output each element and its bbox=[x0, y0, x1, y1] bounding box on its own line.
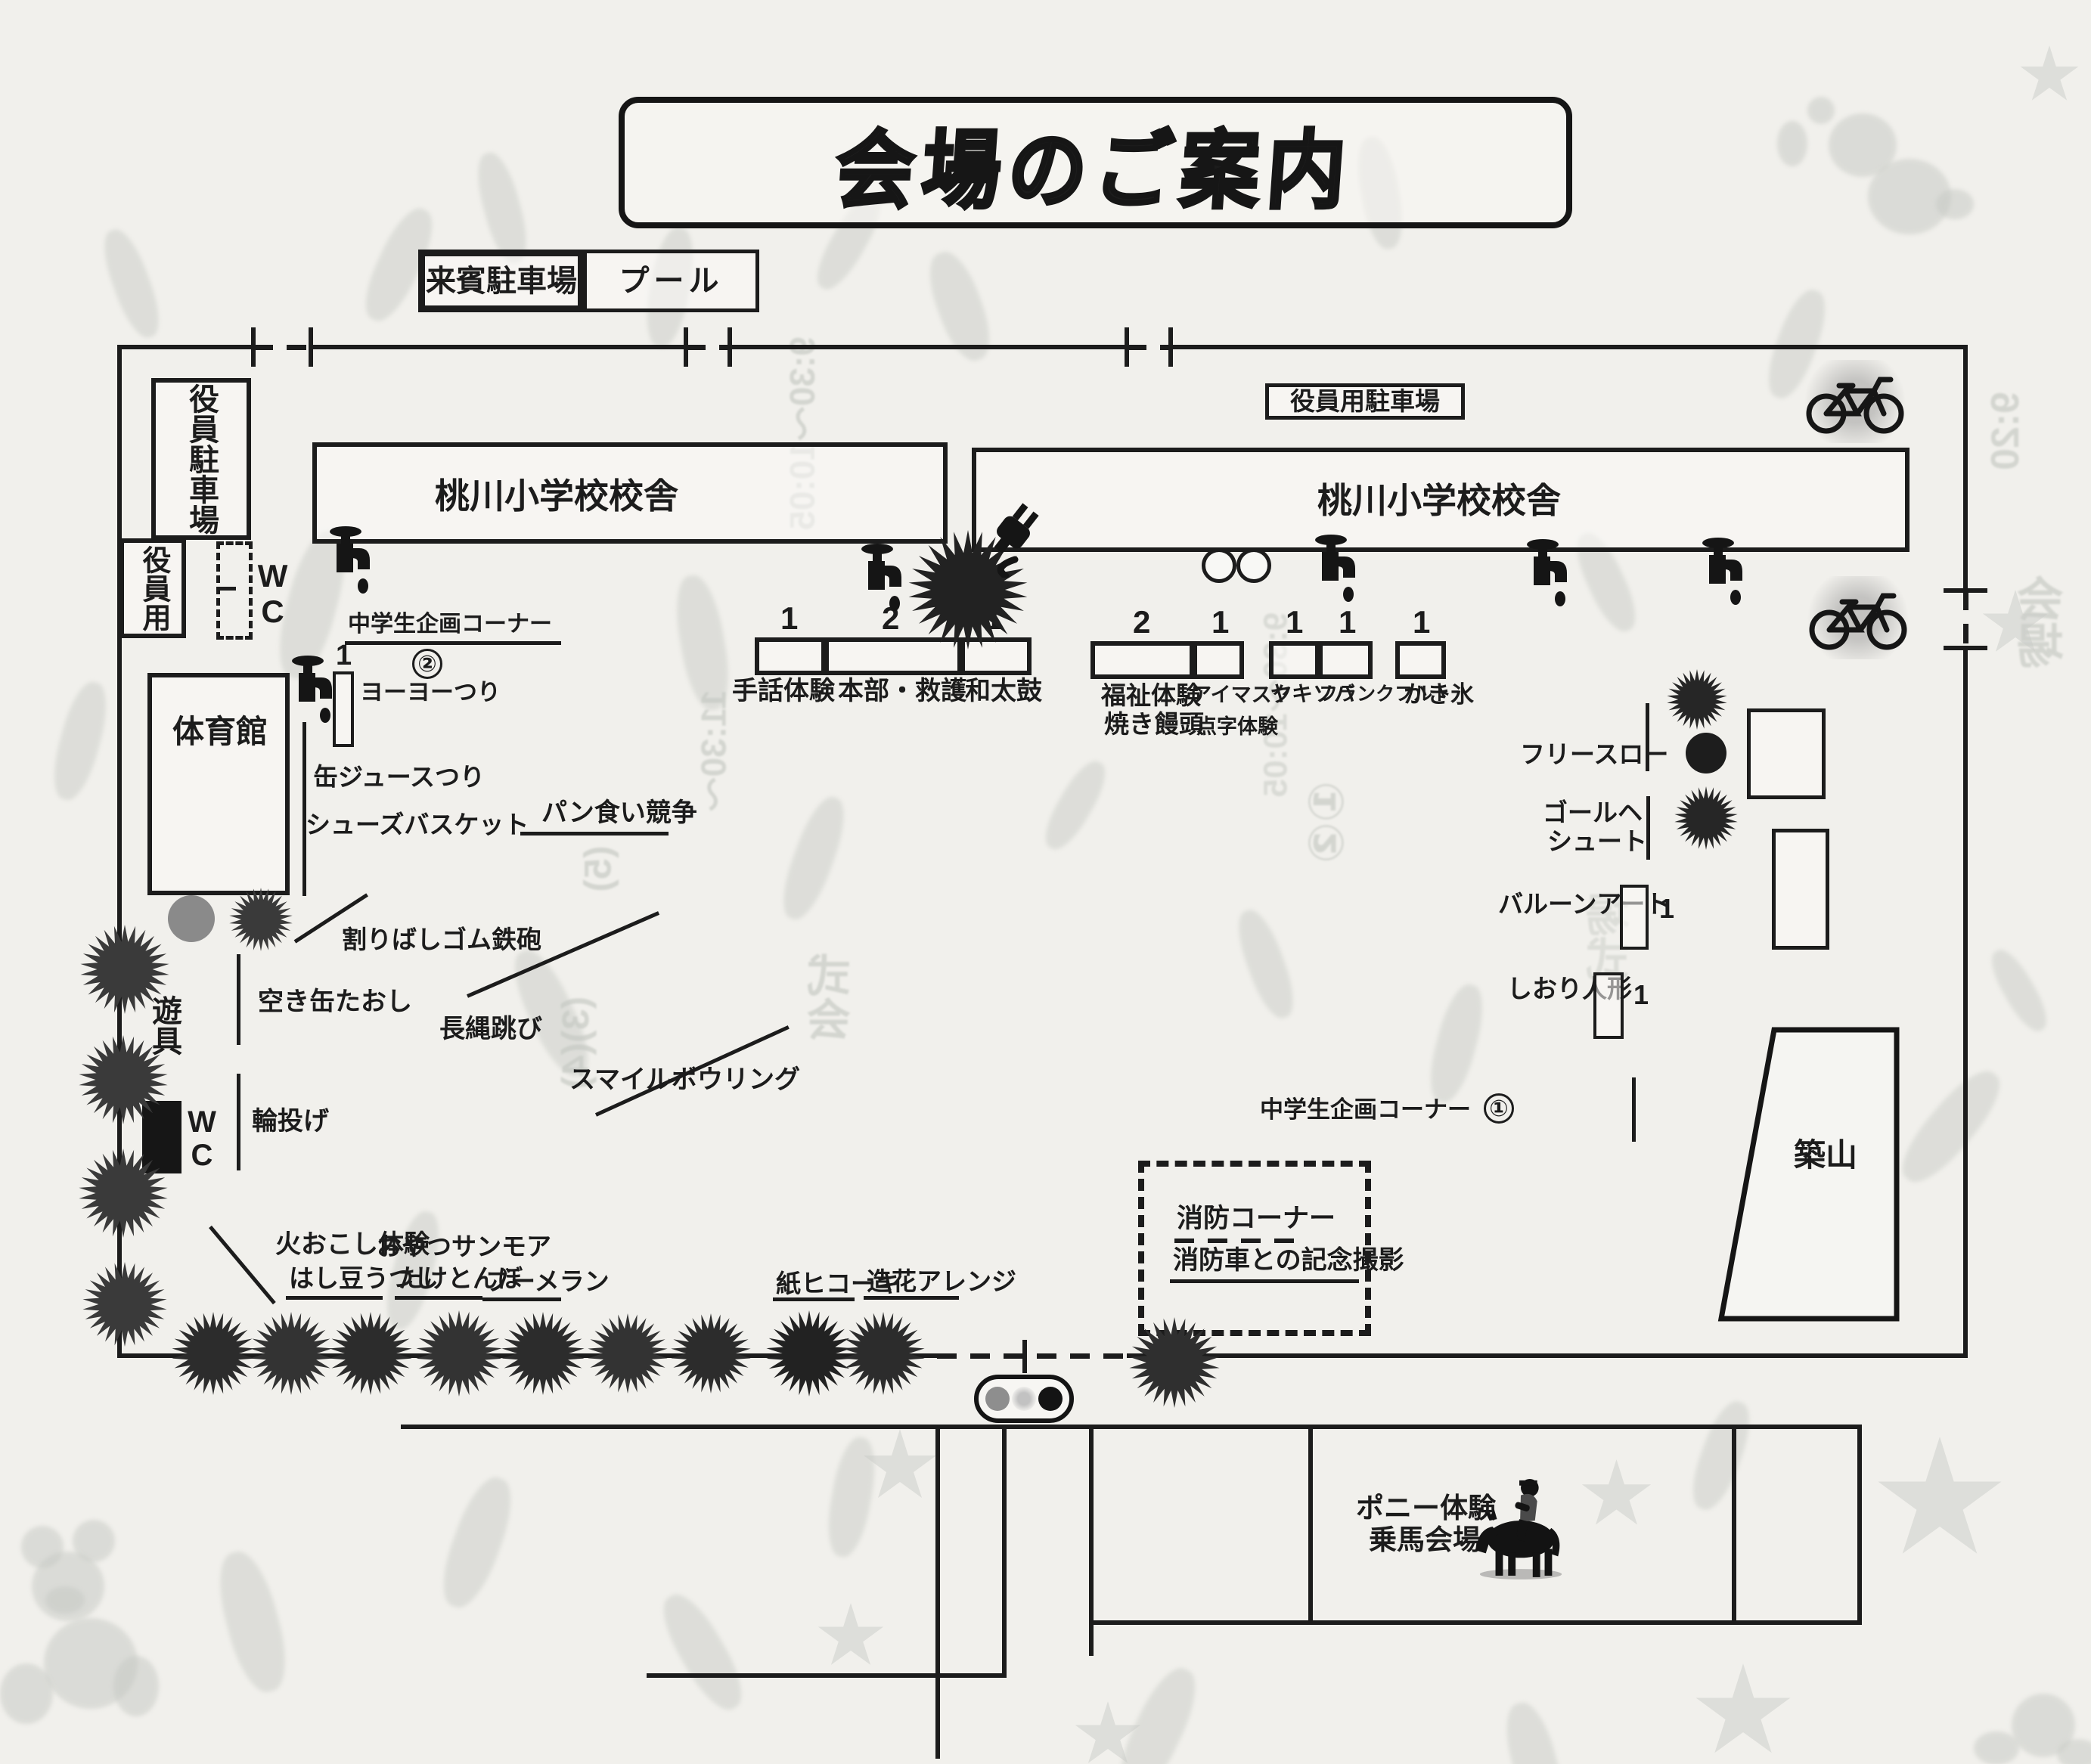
gate-tick bbox=[728, 327, 732, 367]
ghost-animal-doodle bbox=[113, 1656, 159, 1716]
boundary-top bbox=[1171, 345, 1968, 349]
ghost-animal-doodle bbox=[2057, 1739, 2091, 1764]
ghost-animal-doodle bbox=[1868, 159, 1951, 234]
pony-area-line bbox=[1089, 1620, 1862, 1625]
underline bbox=[482, 1297, 561, 1301]
station-line bbox=[237, 954, 240, 1045]
dashed-underline bbox=[1174, 1239, 1295, 1243]
ghost-smudge bbox=[1497, 1697, 1571, 1764]
fence-bottom bbox=[1127, 1353, 1968, 1358]
ghost-animal-doodle bbox=[32, 1552, 104, 1621]
station-count: 1 bbox=[1339, 604, 1356, 640]
right-stand-box bbox=[1772, 829, 1829, 950]
wc-top-label: WC bbox=[256, 558, 289, 629]
naganawa-label: 長縄跳び bbox=[439, 1016, 542, 1043]
guest-parking-box: 来賓駐車場 bbox=[418, 250, 585, 312]
gate-tick bbox=[684, 327, 688, 367]
station-label2: 点字体験 bbox=[1196, 716, 1278, 737]
page-title: 会場のご案内 bbox=[833, 101, 1358, 224]
ghost-animal-doodle bbox=[1829, 113, 1897, 177]
underline bbox=[1170, 1279, 1359, 1283]
station-label: 本部・救護 bbox=[838, 678, 966, 705]
school-building-1-label: 桃川小学校校舎 bbox=[435, 478, 678, 514]
junior-corner2-label: 中学生企画コーナー bbox=[348, 612, 552, 637]
station-line bbox=[1646, 796, 1650, 860]
ghost-bleedthrough-text: ①② bbox=[1298, 781, 1355, 863]
scanned-venue-map: 9:30〜10:0511:30〜9:20(3)(4)(5)①②会場式会場式9:3… bbox=[0, 0, 2091, 1764]
ghost-star-shape bbox=[2019, 45, 2080, 106]
ghost-star-shape bbox=[1581, 1459, 1652, 1531]
faint-dot-icon bbox=[1012, 1387, 1036, 1411]
balloon-count: 1 bbox=[1659, 893, 1674, 925]
station-count: 2 bbox=[882, 600, 899, 637]
junior-corner1-badge: ① bbox=[1484, 1093, 1514, 1124]
underline bbox=[520, 832, 669, 835]
gate-tick bbox=[1125, 327, 1129, 367]
station-label: 福祉体験 bbox=[1101, 683, 1201, 709]
kanjuice-label: 缶ジュースつり bbox=[313, 764, 485, 791]
station-label2: 焼き饅頭 bbox=[1104, 711, 1204, 738]
station-count: 1 bbox=[1286, 604, 1303, 640]
gate-tick bbox=[1168, 327, 1173, 367]
boundary-top bbox=[730, 345, 1127, 349]
goal-label-2: シュート bbox=[1547, 829, 1647, 855]
ghost-animal-doodle bbox=[45, 1586, 85, 1614]
shiori-count: 1 bbox=[1633, 979, 1649, 1011]
underline bbox=[864, 1296, 959, 1300]
road-line bbox=[935, 1425, 940, 1759]
station-box-fukushi bbox=[1090, 641, 1194, 679]
staff-parking-box: 役員駐車場 bbox=[151, 378, 251, 540]
fence-tick bbox=[1022, 1340, 1027, 1373]
waribashi-label: 割りばしゴム鉄砲 bbox=[342, 927, 541, 953]
pan-label: パン食い競争 bbox=[541, 800, 697, 827]
right-stand-box bbox=[1747, 708, 1826, 799]
road-line bbox=[401, 1425, 1862, 1429]
fence-bottom bbox=[117, 1353, 937, 1358]
pool-label: プール bbox=[619, 265, 724, 297]
yoyo-box bbox=[333, 671, 354, 747]
station-line bbox=[1646, 703, 1649, 771]
badge-text: ① bbox=[1489, 1096, 1508, 1122]
hill-outline bbox=[1694, 1013, 1921, 1338]
station-box-frank bbox=[1318, 641, 1373, 679]
hill-label: 築山 bbox=[1794, 1139, 1857, 1172]
ghost-smudge bbox=[822, 1434, 882, 1561]
ghost-smudge bbox=[1984, 944, 2055, 1037]
pony-rider-icon bbox=[1473, 1468, 1570, 1580]
ghost-smudge bbox=[1036, 755, 1114, 857]
road-line bbox=[1002, 1425, 1007, 1676]
gate-tick bbox=[1944, 588, 1987, 593]
ghost-star-shape bbox=[1981, 590, 2049, 658]
station-box-shuwa bbox=[755, 637, 826, 675]
black-dot-icon bbox=[1038, 1387, 1063, 1411]
staff-lot-box: 役員用駐車場 bbox=[1265, 383, 1465, 420]
wc-top-divider bbox=[216, 587, 253, 591]
boundary-left bbox=[117, 345, 122, 1358]
staff-parking-label: 役員駐車場 bbox=[185, 383, 217, 535]
oyatsu-label: おやつサンモア bbox=[377, 1234, 551, 1260]
boundary-right bbox=[1963, 345, 1968, 591]
station-count: 2 bbox=[1133, 604, 1150, 640]
playground-label: 遊具 bbox=[148, 995, 180, 1056]
ghost-smudge bbox=[432, 1471, 523, 1614]
school-building-2-label: 桃川小学校校舎 bbox=[1317, 482, 1561, 519]
three-dot-legend bbox=[974, 1375, 1074, 1423]
boomerang-label: ブーメラン bbox=[486, 1269, 610, 1295]
wc-bottom-box bbox=[142, 1101, 181, 1173]
ghost-animal-doodle bbox=[1777, 121, 1807, 166]
fire-corner-line1: 消防コーナー bbox=[1177, 1205, 1336, 1233]
ghost-star-shape bbox=[1074, 1701, 1142, 1764]
ghost-star-shape bbox=[817, 1603, 885, 1671]
wc-bottom-label: WC bbox=[186, 1105, 218, 1172]
staff-lot-label: 役員用駐車場 bbox=[1290, 389, 1440, 415]
ghost-animal-doodle bbox=[1807, 97, 1835, 124]
boundary-top bbox=[117, 345, 253, 349]
map-title-box: 会場のご案内 bbox=[619, 97, 1572, 228]
ghost-smudge bbox=[209, 1545, 296, 1697]
gym-box bbox=[147, 673, 290, 895]
road-line bbox=[647, 1673, 1007, 1678]
corridor-line bbox=[302, 722, 306, 896]
underline bbox=[395, 1296, 482, 1300]
wc-top-box bbox=[216, 541, 253, 640]
ghost-animal-doodle bbox=[21, 1526, 64, 1568]
ghost-star-shape bbox=[1694, 1663, 1792, 1762]
ghost-animal-doodle bbox=[44, 1618, 138, 1709]
goal-label-1: ゴールヘ bbox=[1543, 800, 1643, 826]
ghost-smudge bbox=[1759, 284, 1835, 405]
ghost-smudge bbox=[45, 677, 115, 804]
yoyo-label: ヨーヨーつり bbox=[360, 680, 501, 705]
junior-corner2-badge: ② bbox=[412, 649, 442, 679]
station-count: 1 bbox=[1211, 604, 1229, 640]
shoes-label: シューズバスケット bbox=[306, 812, 529, 839]
ghost-smudge bbox=[1422, 980, 1491, 1107]
balloon-box bbox=[1620, 885, 1649, 950]
pool-box: プール bbox=[583, 250, 759, 312]
akikan-label: 空き缶たおし bbox=[258, 989, 412, 1016]
station-box-yakisoba bbox=[1269, 641, 1320, 679]
station-box-kakigori bbox=[1395, 641, 1446, 679]
boundary-top-gate bbox=[686, 345, 730, 350]
station-line bbox=[237, 1074, 240, 1170]
ghost-star-shape bbox=[1875, 1437, 2004, 1565]
boundary-top bbox=[311, 345, 686, 349]
gate-tick bbox=[251, 327, 256, 367]
gym-label: 体育館 bbox=[172, 715, 268, 749]
junior-corner1-label: 中学生企画コーナー bbox=[1260, 1098, 1471, 1123]
ghost-smudge bbox=[1230, 904, 1302, 1023]
pony-area-line bbox=[1308, 1425, 1313, 1625]
zouka-label: 造花アレンジ bbox=[867, 1269, 1016, 1295]
ghost-animal-doodle bbox=[1974, 1731, 2019, 1764]
staff-use-box: 役員用 bbox=[119, 538, 186, 638]
station-line bbox=[1632, 1077, 1636, 1142]
boundary-right bbox=[1963, 648, 1968, 1358]
gray-dot-icon bbox=[985, 1387, 1010, 1411]
ghost-smudge bbox=[95, 224, 168, 343]
pony-label-2: 乗馬会場 bbox=[1369, 1526, 1481, 1555]
underline bbox=[773, 1297, 855, 1301]
station-box-wadaiko bbox=[960, 637, 1032, 675]
shiori-box bbox=[1593, 972, 1624, 1039]
yoyo-count: 1 bbox=[336, 640, 352, 672]
station-box-honbu bbox=[824, 637, 962, 675]
ghost-star-shape bbox=[862, 1429, 938, 1505]
station-count: 1 bbox=[985, 600, 1002, 637]
ghost-smudge bbox=[1108, 1660, 1208, 1764]
station-count: 1 bbox=[780, 600, 798, 637]
pony-area-line bbox=[1857, 1425, 1862, 1625]
ghost-smudge bbox=[669, 572, 736, 713]
ghost-smudge bbox=[503, 942, 600, 1084]
pony-area-line bbox=[1732, 1425, 1736, 1625]
station-label: 手話体験 bbox=[732, 678, 835, 705]
underline bbox=[286, 1296, 383, 1300]
station-label: かき氷 bbox=[1404, 683, 1474, 708]
smile-label: スマイルボウリング bbox=[569, 1067, 800, 1094]
station-box-eyemask bbox=[1193, 641, 1244, 679]
station-label: 和太鼓 bbox=[965, 678, 1042, 705]
ghost-bleedthrough-text: (5) bbox=[576, 845, 620, 891]
ghost-bleedthrough-text: 9:20 bbox=[1983, 392, 2028, 470]
gate-tick bbox=[1944, 646, 1987, 650]
ghost-bleedthrough-text: 11:30〜 bbox=[687, 690, 737, 811]
gate-tick bbox=[309, 327, 313, 367]
ghost-bleedthrough-text: 式会 bbox=[802, 953, 865, 1040]
ghost-smudge bbox=[773, 791, 854, 925]
guest-parking-label: 来賓駐車場 bbox=[426, 265, 577, 297]
boundary-top-gate bbox=[253, 345, 311, 350]
ghost-animal-doodle bbox=[0, 1663, 53, 1724]
ghost-animal-doodle bbox=[2012, 1694, 2075, 1757]
wanage-label: 輪投げ bbox=[252, 1108, 329, 1136]
ghost-animal-doodle bbox=[73, 1520, 115, 1562]
ghost-smudge bbox=[1683, 1396, 1759, 1516]
ghost-bleedthrough-text: 会場 bbox=[2012, 575, 2080, 668]
ghost-animal-doodle bbox=[1936, 189, 1974, 219]
underline bbox=[345, 641, 561, 645]
fence-bottom-gate bbox=[937, 1353, 1127, 1359]
boundary-top-gate bbox=[1127, 345, 1171, 350]
boundary-right-gate bbox=[1963, 591, 1968, 648]
badge-text: ② bbox=[417, 651, 436, 677]
station-count: 1 bbox=[1413, 604, 1430, 640]
ghost-smudge bbox=[651, 1586, 753, 1719]
fire-corner-line2: 消防車との記念撮影 bbox=[1173, 1248, 1404, 1275]
staff-use-label: 役員用 bbox=[138, 545, 168, 631]
